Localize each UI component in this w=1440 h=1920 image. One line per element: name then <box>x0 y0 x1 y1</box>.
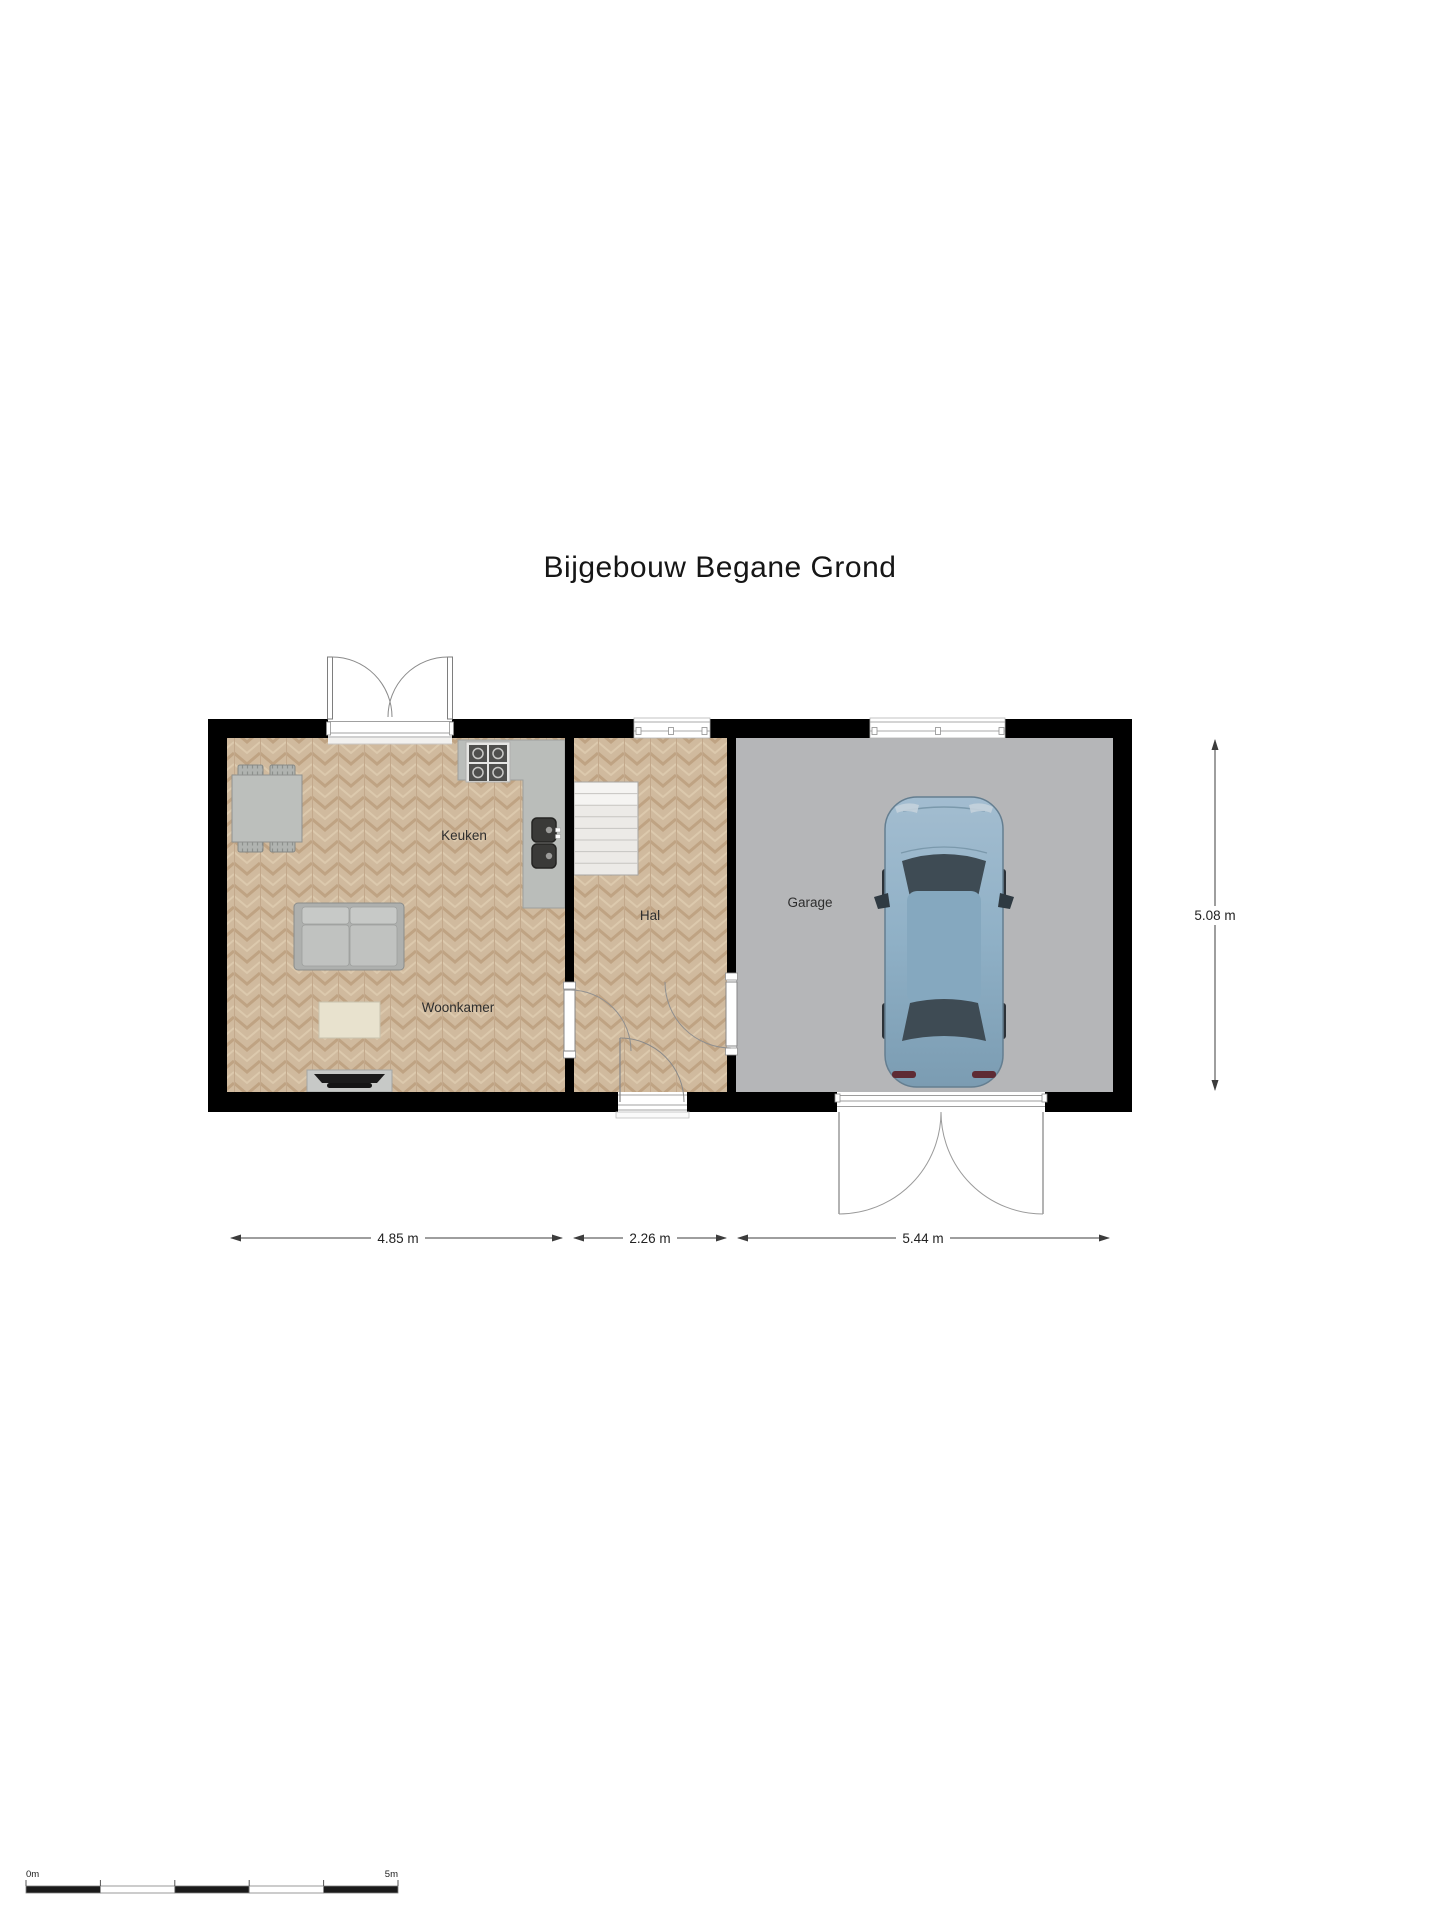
label-woonkamer: Woonkamer <box>422 1000 495 1015</box>
garage-doors <box>835 1092 1047 1214</box>
car-windshield <box>902 854 986 897</box>
burner-plate <box>469 745 487 762</box>
scale-end-label: 5m <box>385 1869 398 1880</box>
door-jamb <box>327 722 331 735</box>
label-garage: Garage <box>787 895 832 910</box>
hall-window <box>634 718 710 738</box>
scale-start-label: 0m <box>26 1869 39 1880</box>
car-taillight <box>892 1071 916 1078</box>
tv-screen <box>314 1074 385 1083</box>
burner-plate <box>489 764 507 781</box>
door-jamb <box>726 973 738 980</box>
stairs <box>574 782 638 875</box>
scale-segment <box>26 1886 100 1893</box>
window-mullion <box>999 728 1004 735</box>
sofa-seat-cushion <box>302 925 349 966</box>
sofa <box>294 903 404 970</box>
wall-left <box>208 719 227 1112</box>
dim-woonkamer-width: 4.85 m <box>377 1231 418 1246</box>
french-doors <box>327 657 454 744</box>
scale-ticks <box>26 1880 398 1886</box>
sink-basin <box>532 844 556 868</box>
window-mullion <box>872 728 877 735</box>
tv-unit <box>307 1070 392 1092</box>
sink-tap <box>556 828 561 832</box>
sink-basin <box>532 818 556 842</box>
sink-drain <box>546 827 552 833</box>
door-swing-arc <box>839 1112 941 1214</box>
dining-table <box>232 775 302 842</box>
door-jamb <box>835 1094 840 1102</box>
door-leaf <box>328 657 333 719</box>
sofa-seat-cushion <box>350 925 397 966</box>
car-taillight <box>972 1071 996 1078</box>
coffee-table <box>319 1002 380 1038</box>
dim-hal-width: 2.26 m <box>629 1231 670 1246</box>
door-jamb <box>564 982 576 989</box>
tv-base <box>327 1083 372 1088</box>
burner-plate <box>469 764 487 781</box>
garage-window <box>870 718 1005 738</box>
sofa-back-cushion <box>350 907 397 924</box>
floorplan-page: Bijgebouw Begane Grond <box>0 0 1440 1920</box>
door-jamb <box>1042 1094 1047 1102</box>
door-jamb <box>726 1048 738 1055</box>
window-mullion <box>636 728 641 735</box>
wall-right <box>1113 719 1132 1112</box>
door-leaf <box>564 990 575 1051</box>
car-roof <box>907 891 981 1003</box>
label-keuken: Keuken <box>441 828 487 843</box>
burner-plate <box>489 745 507 762</box>
door-leaf <box>726 982 737 1046</box>
window-mullion <box>669 728 674 735</box>
label-hal: Hal <box>640 908 660 923</box>
front-door-sill <box>616 1112 689 1118</box>
car <box>874 797 1014 1087</box>
dim-garage-width: 5.44 m <box>902 1231 943 1246</box>
scale-segment <box>175 1886 249 1893</box>
sink-tap <box>556 835 561 839</box>
scale-segment <box>324 1886 398 1893</box>
dining-set <box>232 765 302 852</box>
dim-total-depth: 5.08 m <box>1194 908 1235 923</box>
french-door-sill <box>328 738 452 744</box>
sofa-back-cushion <box>302 907 349 924</box>
window-mullion <box>702 728 707 735</box>
stove <box>466 742 510 782</box>
door-jamb <box>450 722 454 735</box>
door-leaf <box>448 657 453 719</box>
floorplan-drawing: Keuken Woonkamer Hal Garage 4.8 <box>0 0 1440 1920</box>
sink-drain <box>546 853 552 859</box>
door-swing-arc <box>332 657 392 717</box>
scale-segment <box>100 1886 174 1893</box>
scale-segment <box>249 1886 323 1893</box>
door-swing-arc <box>941 1112 1043 1214</box>
car-rear-window <box>902 999 986 1041</box>
scale-bar: 0m 5m <box>26 1869 398 1893</box>
door-jamb <box>564 1051 576 1058</box>
window-mullion <box>936 728 941 735</box>
door-swing-arc <box>388 657 448 717</box>
